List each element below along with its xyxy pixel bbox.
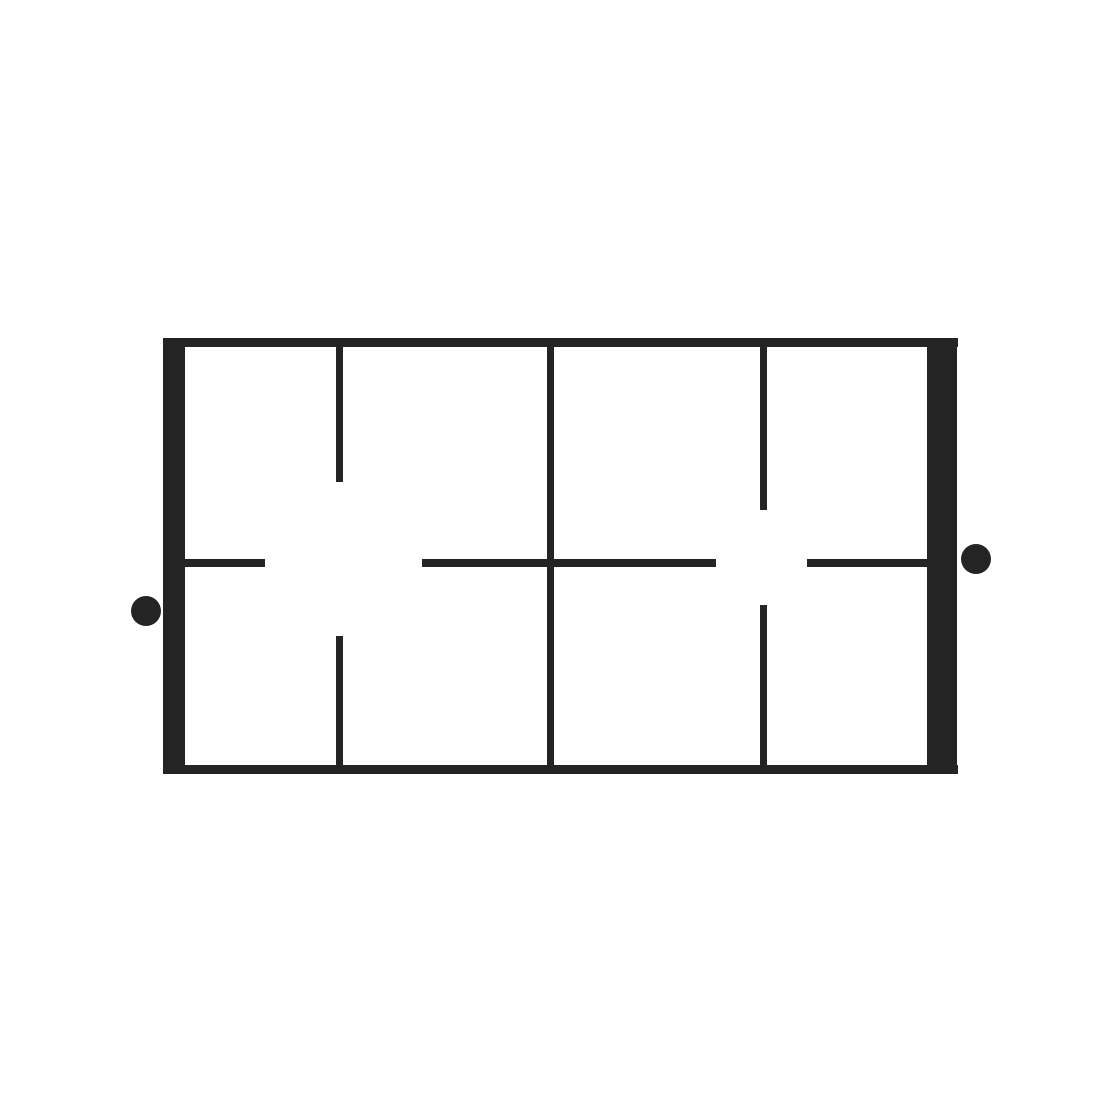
right-divider-top-segment	[760, 347, 767, 510]
frame-left-end-bar	[163, 338, 185, 774]
center-divider	[547, 347, 554, 765]
left-divider-top-segment	[336, 347, 343, 482]
frame-right-end-bar	[927, 338, 957, 774]
midline-left-stub	[185, 559, 265, 567]
right-dot	[961, 544, 991, 574]
left-dot	[131, 596, 161, 626]
midline-center-segment	[422, 559, 716, 567]
right-divider-bottom-segment	[760, 605, 767, 765]
frame-bottom-edge	[163, 765, 958, 774]
stimulus-svg	[0, 0, 1100, 1100]
frame-top-edge	[163, 338, 958, 347]
figure-canvas	[0, 0, 1100, 1100]
left-divider-bottom-segment	[336, 636, 343, 765]
midline-right-segment	[807, 559, 927, 567]
